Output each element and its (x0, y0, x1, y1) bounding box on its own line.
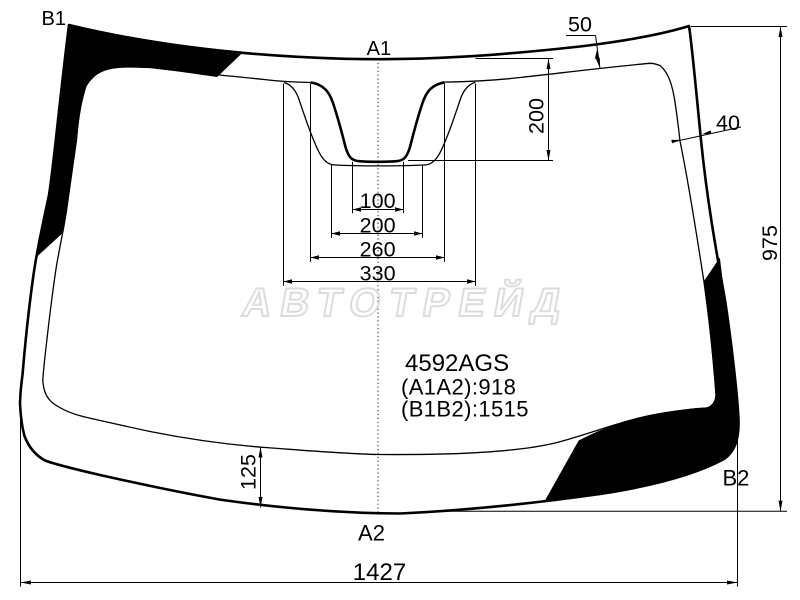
svg-text:A1: A1 (367, 38, 391, 60)
svg-text:40: 40 (716, 111, 740, 135)
svg-text:100: 100 (360, 189, 396, 213)
svg-text:B1: B1 (42, 8, 66, 30)
svg-text:260: 260 (360, 237, 396, 261)
svg-text:1427: 1427 (353, 559, 406, 586)
svg-text:A2: A2 (358, 521, 385, 546)
svg-text:50: 50 (568, 13, 592, 37)
svg-text:4592AGS: 4592AGS (405, 350, 509, 377)
svg-text:200: 200 (360, 213, 396, 237)
svg-text:975: 975 (758, 225, 782, 261)
svg-text:(B1B2):1515: (B1B2):1515 (401, 397, 529, 422)
svg-text:125: 125 (237, 454, 261, 490)
svg-text:АВТОТРЕЙД: АВТОТРЕЙД (239, 279, 574, 325)
svg-text:B2: B2 (723, 466, 750, 491)
svg-text:200: 200 (525, 98, 549, 134)
